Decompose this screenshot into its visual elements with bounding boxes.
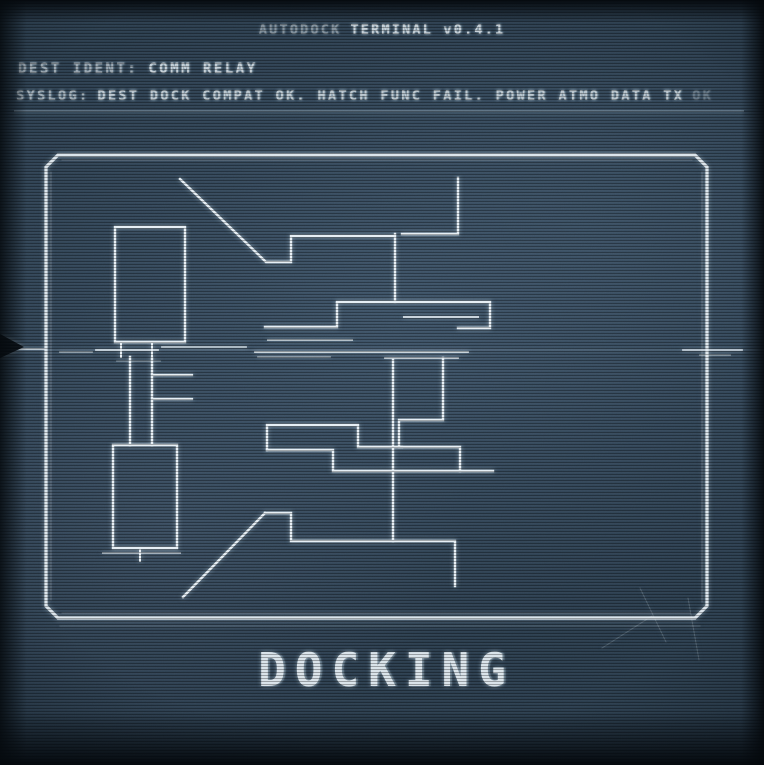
lower-connector-hooks xyxy=(152,375,192,399)
syslog-text: DEST DOCK COMPAT OK. HATCH FUNC FAIL. PO… xyxy=(97,88,684,104)
autodock-terminal-screen: AUTODOCKTERMINAL v0.4.1 DEST IDENT:COMM … xyxy=(0,0,764,765)
lower-port-assembly xyxy=(103,357,493,597)
dest-ident-label: DEST IDENT: xyxy=(18,61,138,77)
upper-port-assembly xyxy=(115,178,490,357)
syslog-label: SYSLOG: xyxy=(16,88,89,104)
fold-line xyxy=(0,349,764,351)
upper-right-rail xyxy=(402,178,458,234)
fold-dark-wedge xyxy=(0,334,24,358)
lower-s-bracket xyxy=(399,358,460,471)
upper-module-outline xyxy=(115,227,185,342)
lower-connector-lines xyxy=(130,357,152,445)
syslog-line: SYSLOG:DEST DOCK COMPAT OK. HATCH FUNC F… xyxy=(16,88,713,104)
header-title-app: AUTODOCK xyxy=(259,22,342,38)
blueprint-frame xyxy=(46,155,707,626)
lower-staircase-top xyxy=(267,425,402,450)
dest-ident-value: COMM RELAY xyxy=(148,61,257,77)
dest-ident-line: DEST IDENT:COMM RELAY xyxy=(18,61,258,77)
docking-caption: DOCKING xyxy=(0,643,764,697)
lower-diagonal-strut xyxy=(183,513,265,597)
upper-shelf xyxy=(337,302,490,328)
header-title-version: TERMINAL v0.4.1 xyxy=(350,22,505,38)
syslog-status-faded: OK xyxy=(692,88,713,104)
header-divider xyxy=(14,110,744,112)
lower-module-outline xyxy=(113,445,177,548)
upper-diagonal-strut xyxy=(180,179,393,262)
header-title: AUTODOCKTERMINAL v0.4.1 xyxy=(0,22,764,38)
lower-rail xyxy=(265,513,455,586)
upper-left-shelf xyxy=(265,303,337,327)
